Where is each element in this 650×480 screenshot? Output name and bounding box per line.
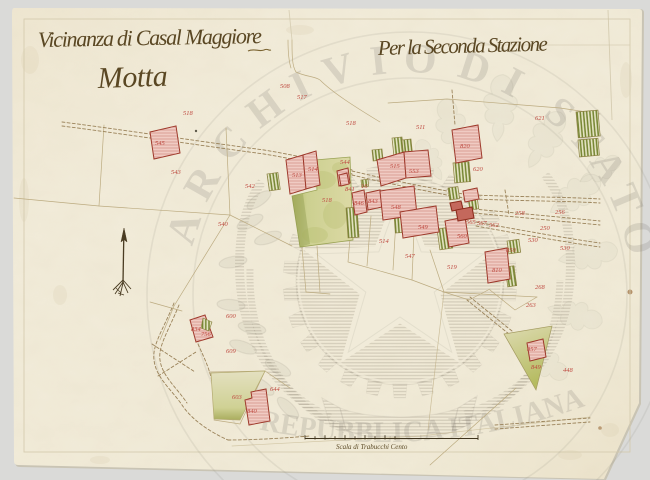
svg-text:549: 549 — [418, 224, 429, 231]
svg-text:548: 548 — [391, 204, 402, 211]
svg-text:620: 620 — [473, 166, 484, 173]
svg-text:553: 553 — [409, 168, 420, 175]
svg-text:849: 849 — [531, 364, 542, 371]
svg-text:518: 518 — [346, 120, 357, 127]
svg-text:841: 841 — [345, 186, 355, 193]
svg-text:518: 518 — [183, 110, 194, 117]
svg-text:530: 530 — [560, 245, 571, 252]
svg-text:508: 508 — [280, 83, 291, 90]
svg-text:514: 514 — [308, 166, 319, 173]
svg-text:621: 621 — [535, 115, 545, 122]
svg-text:547: 547 — [405, 253, 416, 260]
svg-text:644: 644 — [270, 386, 281, 393]
svg-text:513: 513 — [292, 172, 303, 179]
svg-text:542: 542 — [245, 183, 256, 190]
svg-text:857: 857 — [527, 346, 538, 353]
svg-text:609: 609 — [226, 348, 237, 355]
svg-text:515: 515 — [390, 163, 401, 170]
svg-text:810: 810 — [492, 267, 503, 274]
svg-text:840: 840 — [247, 408, 258, 415]
svg-text:517: 517 — [297, 94, 308, 101]
svg-text:530: 530 — [528, 237, 539, 244]
svg-text:263: 263 — [526, 302, 537, 309]
svg-text:514: 514 — [379, 238, 390, 245]
svg-text:544: 544 — [340, 159, 351, 166]
svg-text:Motta: Motta — [96, 60, 168, 95]
svg-text:Vicinanza di Casal Maggiore: Vicinanza di Casal Maggiore — [38, 23, 263, 52]
svg-text:543: 543 — [171, 169, 182, 176]
svg-text:600: 600 — [226, 313, 237, 320]
svg-text:250: 250 — [540, 225, 551, 232]
svg-text:820: 820 — [460, 143, 471, 150]
svg-text:567: 567 — [477, 220, 488, 227]
svg-text:448: 448 — [563, 367, 574, 374]
svg-text:268: 268 — [535, 284, 546, 291]
svg-text:603: 603 — [232, 394, 243, 401]
svg-text:545: 545 — [155, 140, 166, 147]
svg-text:258: 258 — [515, 210, 526, 217]
svg-text:560: 560 — [457, 233, 468, 240]
svg-text:16: 16 — [361, 183, 368, 190]
svg-text:846: 846 — [354, 200, 365, 207]
svg-text:540: 540 — [218, 221, 229, 228]
svg-text:Scala di Trabucchi Cento: Scala di Trabucchi Cento — [336, 443, 408, 451]
svg-text:756: 756 — [201, 331, 212, 338]
svg-text:Per la Seconda Stazione: Per la Seconda Stazione — [377, 32, 549, 60]
svg-text:519: 519 — [447, 264, 458, 271]
svg-text:511: 511 — [416, 124, 425, 131]
svg-text:256: 256 — [555, 209, 566, 216]
svg-text:518: 518 — [322, 197, 333, 204]
svg-text:843: 843 — [368, 198, 379, 205]
svg-text:562: 562 — [489, 222, 500, 229]
svg-text:850: 850 — [506, 247, 517, 254]
svg-text:565: 565 — [466, 219, 477, 226]
svg-text:834: 834 — [191, 326, 202, 333]
